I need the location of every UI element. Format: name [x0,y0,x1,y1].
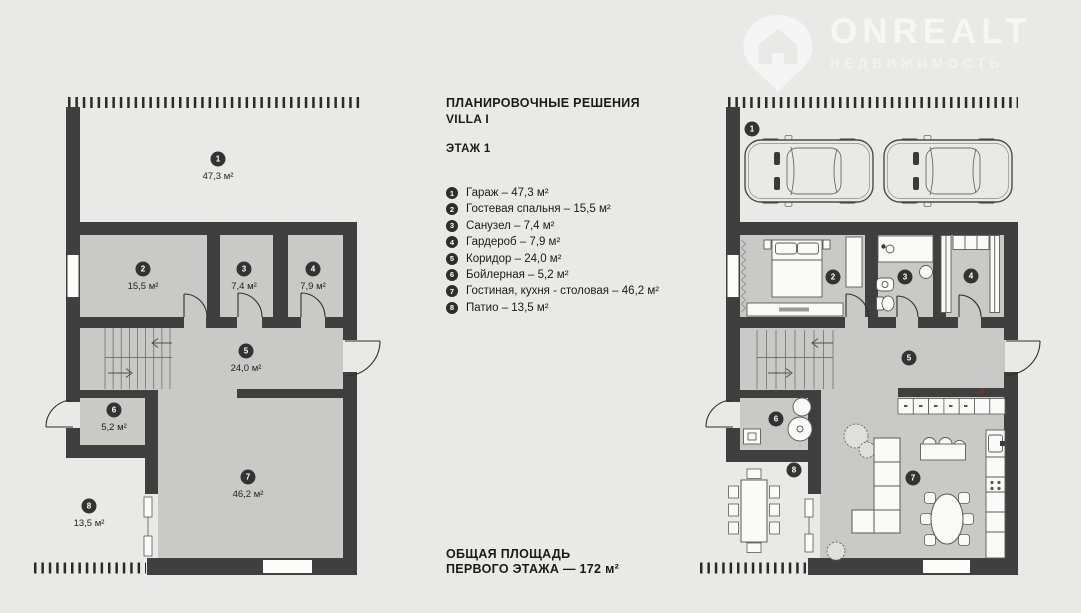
left-plan-room-4-area: 7,9 м² [300,281,326,292]
left-plan-room-1-area: 47,3 м² [203,171,234,182]
kitchen-column [986,430,1005,558]
car-icon [745,136,873,207]
legend-item-number: 3 [446,220,458,232]
legend-item: 1 Гараж – 47,3 м² [446,187,706,199]
fireplace-mark [979,389,984,393]
legend-item: 6 Бойлерная – 5,2 м² [446,269,706,281]
left-plan-room-2-badge: 2 [136,262,151,277]
window [263,560,312,573]
brand-logo: ONREALT НЕДВИЖИМОСТЬ [742,14,1032,94]
left-plan-room-7-area: 46,2 м² [233,489,264,500]
legend-item-label: Гараж – 47,3 м² [466,187,549,199]
sliding-door [144,497,152,556]
legend-item-label: Гостевая спальня – 15,5 м² [466,203,611,215]
left-plan-room-2-area: 15,5 м² [128,281,159,292]
right-plan-room-2-badge: 2 [826,270,841,285]
window [68,255,79,297]
window [923,560,970,573]
right-plan-room-8-badge: 8 [787,463,802,478]
right-plan-room-3-badge: 3 [898,270,913,285]
legend-item-number: 1 [446,187,458,199]
right-floor-plan [700,103,1040,576]
total-area-line1: ОБЩАЯ ПЛОЩАДЬ [446,547,619,562]
legend-item-number: 2 [446,203,458,215]
left-plan-room-6-badge: 6 [107,403,122,418]
legend-item-label: Гардероб – 7,9 м² [466,236,560,248]
left-plan-room-7-badge: 7 [241,470,256,485]
legend-item: 5 Коридор – 24,0 м² [446,253,706,265]
villa-name: VILLA I [446,112,706,126]
legend-item: 3 Санузел – 7,4 м² [446,220,706,232]
right-plan-room-7-badge: 7 [906,471,921,486]
sliding-door [805,499,813,552]
legend-item: 4 Гардероб – 7,9 м² [446,236,706,248]
left-plan-room-5-badge: 5 [239,344,254,359]
legend-item: 7 Гостиная, кухня - столовая – 46,2 м² [446,285,706,297]
page-title: ПЛАНИРОВОЧНЫЕ РЕШЕНИЯ [446,96,706,110]
left-plan-room-3-badge: 3 [237,262,252,277]
right-plan-room-1-badge: 1 [745,122,760,137]
total-area-line2: ПЕРВОГО ЭТАЖА — 172 м² [446,562,619,577]
dining-set [921,493,974,546]
legend-item-number: 7 [446,285,458,297]
legend-item-label: Гостиная, кухня - столовая – 46,2 м² [466,285,659,297]
house-pin-icon [742,14,814,94]
right-plan-room-5-badge: 5 [902,351,917,366]
legend-item-number: 5 [446,253,458,265]
legend-item-label: Бойлерная – 5,2 м² [466,269,569,281]
room-legend: 1 Гараж – 47,3 м² 2 Гостевая спальня – 1… [446,187,706,314]
legend-item-label: Патио – 13,5 м² [466,302,549,314]
left-plan-room-6-area: 5,2 м² [101,422,127,433]
right-plan-room-6-badge: 6 [769,412,784,427]
total-area-note: ОБЩАЯ ПЛОЩАДЬ ПЕРВОГО ЭТАЖА — 172 м² [446,547,619,576]
brand-subtitle: НЕДВИЖИМОСТЬ [830,56,1032,71]
left-plan-room-8-badge: 8 [82,499,97,514]
patio-dining-set [729,469,780,553]
car-icon [884,136,1012,207]
kitchen-island [921,438,966,461]
legend-item-number: 4 [446,236,458,248]
left-plan-room-1-badge: 1 [211,152,226,167]
floor-label: ЭТАЖ 1 [446,143,706,155]
legend-item: 2 Гостевая спальня – 15,5 м² [446,203,706,215]
window [728,255,739,297]
right-plan-room-4-badge: 4 [964,269,979,284]
left-plan-room-3-area: 7,4 м² [231,281,257,292]
kitchen-counter [898,399,1005,415]
left-plan-room-5-area: 24,0 м² [231,363,262,374]
plan-info-panel: ПЛАНИРОВОЧНЫЕ РЕШЕНИЯ VILLA I ЭТАЖ 1 1 Г… [446,96,706,318]
left-plan-room-8-area: 13,5 м² [74,518,105,529]
legend-item: 8 Патио – 13,5 м² [446,302,706,314]
legend-item-label: Санузел – 7,4 м² [466,220,555,232]
legend-item-label: Коридор – 24,0 м² [466,253,562,265]
legend-item-number: 6 [446,269,458,281]
floorplan-page: ONREALT НЕДВИЖИМОСТЬ ПЛАНИРОВОЧНЫЕ РЕШЕН… [0,0,1081,613]
legend-item-number: 8 [446,302,458,314]
brand-name: ONREALT [830,14,1032,49]
left-plan-room-4-badge: 4 [306,262,321,277]
